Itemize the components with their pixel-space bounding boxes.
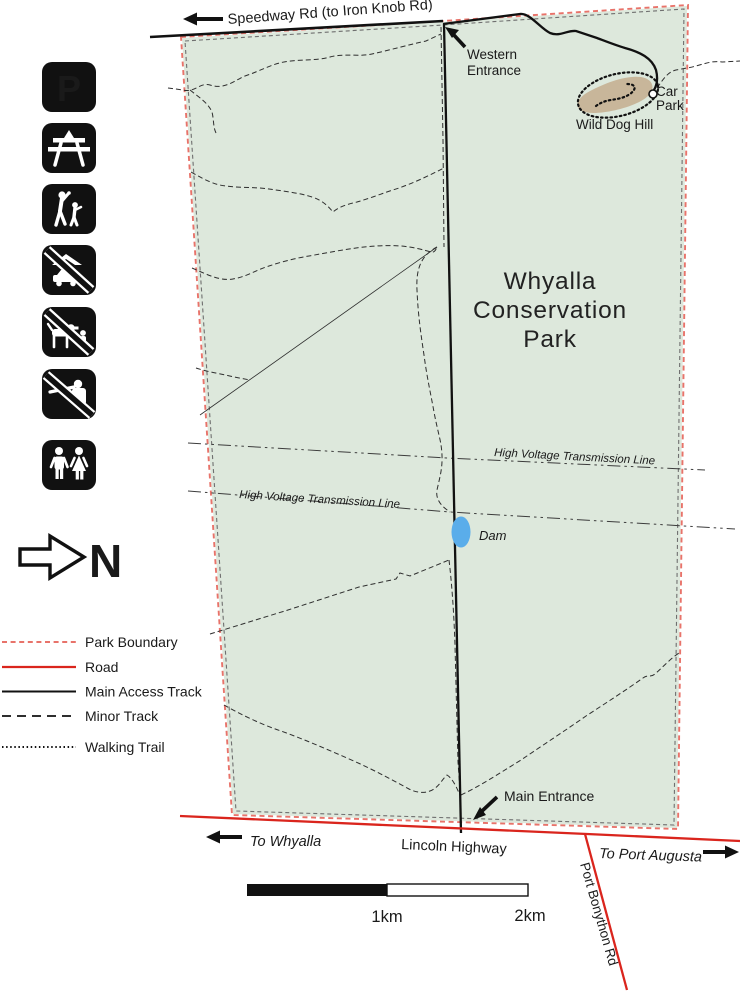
western-entrance-label-1: Western — [467, 47, 517, 62]
main-entrance-label: Main Entrance — [504, 788, 594, 804]
no-dogs-icon — [42, 307, 96, 357]
toilets-icon — [42, 440, 96, 490]
picnic-area-icon — [42, 123, 96, 173]
scale-bar-second-km — [387, 884, 528, 896]
scale-bar: 1km 2km — [247, 884, 546, 926]
lincoln-highway-label: Lincoln Highway — [401, 837, 508, 858]
park-title-line-2: Conservation — [473, 297, 627, 324]
north-indicator: N — [20, 535, 122, 587]
to-port-augusta-label: To Port Augusta — [599, 846, 702, 866]
car-park-label-2: Park — [656, 98, 684, 113]
north-arrow-icon — [20, 536, 84, 578]
parking-icon: P — [42, 62, 96, 112]
whyalla-conservation-park-map: Speedway Rd (to Iron Knob Rd) Western En… — [0, 0, 740, 992]
park-title-line-1: Whyalla — [504, 268, 597, 295]
scale-bar-2km-label: 2km — [514, 907, 545, 925]
car-park-label-1: Car — [656, 84, 678, 99]
legend-main-access-track-label: Main Access Track — [85, 684, 203, 700]
speedway-arrow — [183, 13, 223, 26]
legend-road-label: Road — [85, 659, 118, 675]
park-title-line-3: Park — [523, 326, 577, 353]
legend-minor-track-label: Minor Track — [85, 708, 159, 724]
to-port-augusta-arrow — [703, 846, 739, 859]
legend: Park Boundary Road Main Access Track Min… — [2, 634, 203, 755]
no-camping-icon — [42, 245, 96, 295]
wild-dog-hill-label: Wild Dog Hill — [576, 117, 653, 132]
to-whyalla-label: To Whyalla — [250, 834, 321, 850]
legend-walking-trail-label: Walking Trail — [85, 739, 165, 755]
no-hunting-icon — [42, 369, 96, 419]
bushwalking-icon — [42, 184, 96, 234]
scale-bar-1km-label: 1km — [371, 908, 402, 926]
parking-glyph: P — [57, 68, 81, 109]
western-entrance-label-2: Entrance — [467, 63, 521, 78]
dam-water — [452, 517, 471, 548]
scale-bar-first-km — [247, 884, 387, 896]
dam-label: Dam — [479, 528, 507, 543]
legend-park-boundary-label: Park Boundary — [85, 634, 178, 650]
park-map-page: Speedway Rd (to Iron Knob Rd) Western En… — [0, 0, 740, 992]
north-label: N — [89, 535, 122, 587]
port-bonython-road-label: Port Bonython Rd — [577, 861, 621, 968]
to-whyalla-arrow — [206, 831, 242, 844]
